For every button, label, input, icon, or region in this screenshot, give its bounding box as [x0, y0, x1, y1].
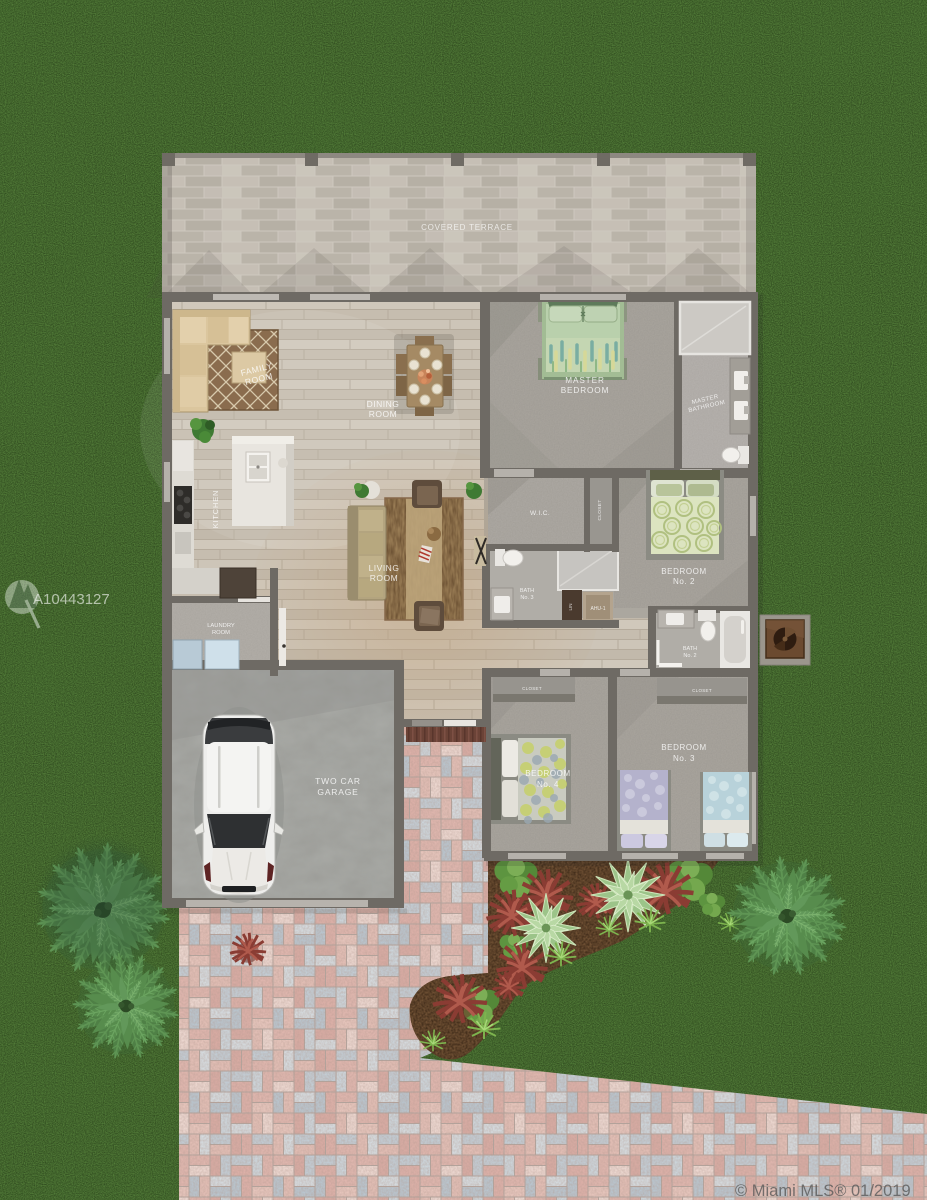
svg-text:LIN: LIN	[568, 603, 573, 610]
svg-text:AHU-1: AHU-1	[590, 606, 605, 612]
svg-text:BEDROOM: BEDROOM	[561, 386, 610, 395]
svg-text:BEDROOM: BEDROOM	[661, 743, 707, 752]
svg-text:GARAGE: GARAGE	[317, 787, 358, 797]
svg-text:CLOSET: CLOSET	[522, 686, 542, 691]
svg-text:BEDROOM: BEDROOM	[661, 567, 707, 576]
svg-text:ROOM: ROOM	[212, 630, 230, 636]
svg-text:No. 3: No. 3	[673, 754, 695, 763]
svg-text:ROOM: ROOM	[370, 573, 398, 583]
svg-text:No. 4: No. 4	[537, 780, 559, 789]
svg-text:No. 3: No. 3	[520, 595, 533, 601]
svg-text:LIVING: LIVING	[369, 563, 400, 573]
svg-text:CLOSET: CLOSET	[597, 500, 603, 521]
svg-text:MASTER: MASTER	[565, 376, 605, 385]
svg-text:No. 2: No. 2	[683, 653, 696, 659]
svg-text:© Miami MLS® 01/2019: © Miami MLS® 01/2019	[735, 1182, 911, 1200]
svg-text:DINING: DINING	[367, 399, 400, 409]
svg-text:COVERED TERRACE: COVERED TERRACE	[421, 223, 513, 232]
svg-text:BATH: BATH	[683, 646, 697, 652]
svg-text:ROOM: ROOM	[369, 409, 397, 419]
svg-text:No. 2: No. 2	[673, 577, 695, 586]
svg-text:BATH: BATH	[520, 588, 534, 594]
svg-text:W.I.C.: W.I.C.	[530, 510, 550, 517]
svg-text:CLOSET: CLOSET	[692, 688, 712, 693]
svg-text:KITCHEN: KITCHEN	[211, 490, 220, 529]
svg-text:TWO CAR: TWO CAR	[315, 776, 361, 786]
svg-text:A10443127: A10443127	[33, 591, 110, 608]
svg-text:BEDROOM: BEDROOM	[525, 769, 571, 778]
svg-text:LAUNDRY: LAUNDRY	[207, 623, 235, 629]
